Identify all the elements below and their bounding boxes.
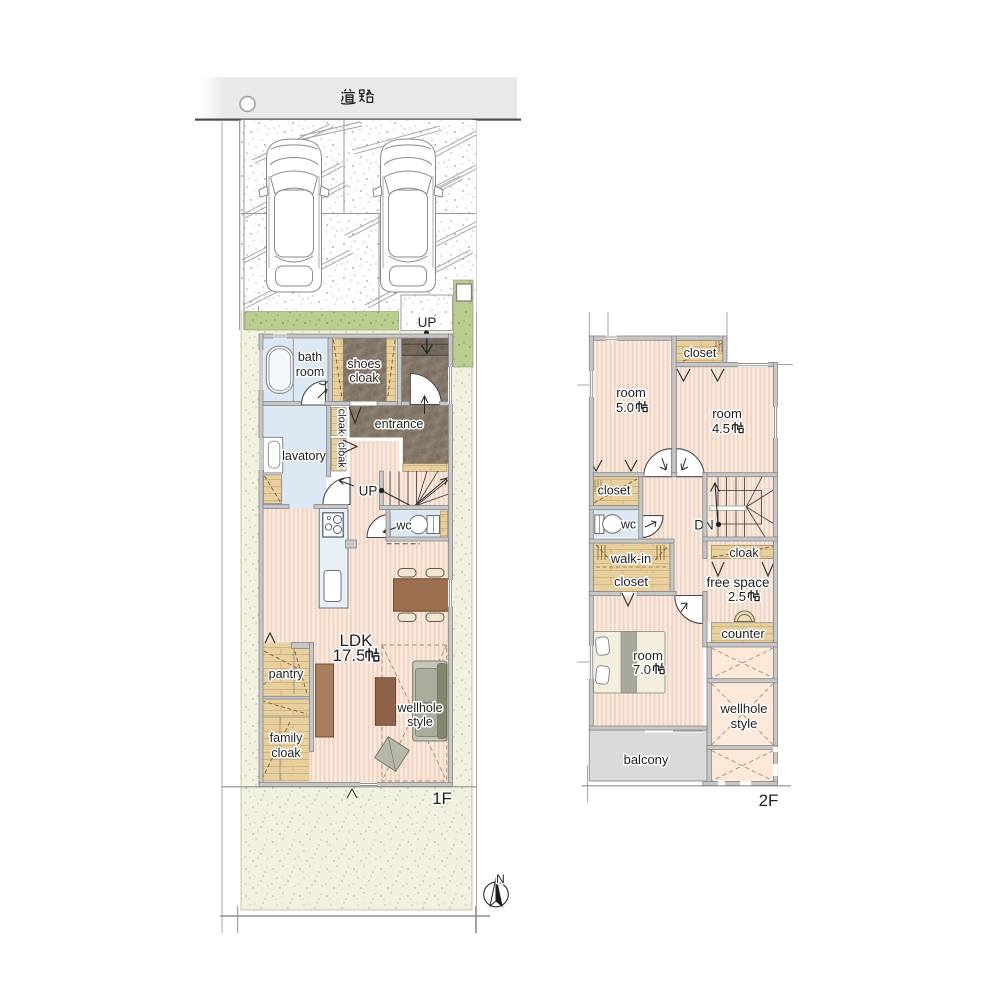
svg-text:UP: UP	[359, 484, 378, 499]
svg-text:balcony: balcony	[624, 752, 669, 767]
svg-text:style: style	[407, 715, 433, 729]
svg-text:room: room	[712, 406, 742, 421]
svg-text:walk-in: walk-in	[610, 551, 651, 566]
svg-text:cloak: cloak	[349, 371, 379, 385]
svg-text:family: family	[270, 731, 303, 745]
svg-text:17.5: 17.5	[332, 646, 365, 665]
svg-text:2.5: 2.5	[728, 589, 746, 604]
svg-text:room: room	[616, 385, 646, 400]
svg-text:cloak: cloak	[336, 409, 348, 435]
svg-text:entrance: entrance	[375, 417, 424, 431]
svg-text:closet: closet	[684, 346, 717, 360]
svg-text:wellhole: wellhole	[720, 701, 768, 716]
svg-text:free space: free space	[706, 575, 769, 590]
svg-text:1F: 1F	[432, 789, 452, 808]
svg-text:cloak: cloak	[729, 546, 759, 560]
svg-text:counter: counter	[721, 626, 765, 641]
svg-text:cloak: cloak	[336, 442, 348, 468]
svg-text:style: style	[731, 716, 758, 731]
svg-text:wellhole: wellhole	[396, 701, 442, 715]
svg-text:5.0: 5.0	[616, 400, 634, 415]
svg-text:pantry: pantry	[269, 667, 304, 681]
svg-text:bath: bath	[298, 350, 322, 364]
svg-text:4.5: 4.5	[712, 421, 730, 436]
svg-text:closet: closet	[614, 574, 648, 589]
svg-text:cloak: cloak	[271, 746, 301, 760]
svg-text:lavatory: lavatory	[282, 449, 327, 463]
svg-text:wc: wc	[620, 518, 636, 532]
svg-text:room: room	[296, 365, 324, 379]
svg-text:7.0: 7.0	[633, 662, 651, 677]
svg-text:shoes: shoes	[347, 357, 380, 371]
svg-text:closet: closet	[598, 484, 631, 498]
svg-text:UP: UP	[418, 315, 437, 330]
svg-text:wc: wc	[395, 519, 411, 533]
svg-text:room: room	[633, 648, 663, 663]
svg-text:2F: 2F	[759, 791, 779, 810]
svg-text:N: N	[496, 872, 505, 886]
